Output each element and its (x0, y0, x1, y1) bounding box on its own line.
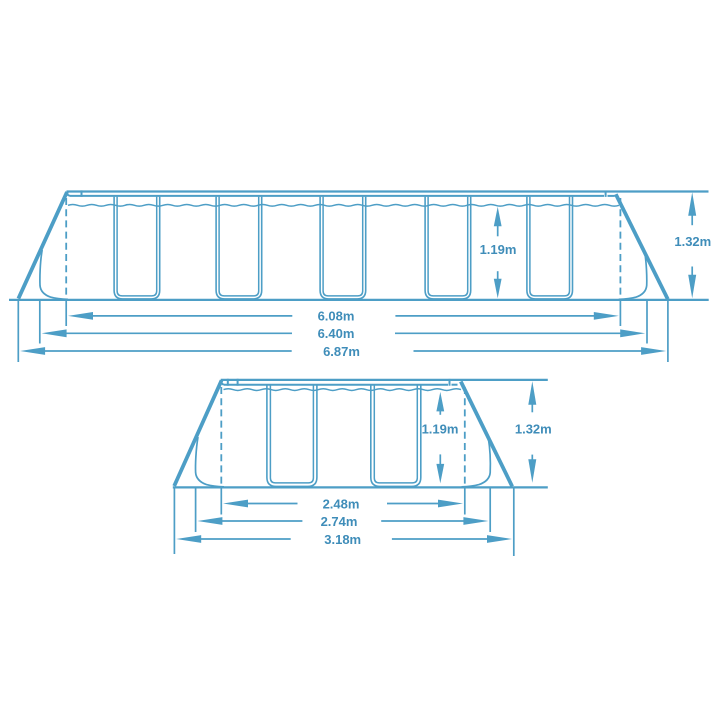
svg-text:2.48m: 2.48m (323, 496, 360, 511)
svg-text:3.18m: 3.18m (324, 532, 361, 547)
svg-text:6.08m: 6.08m (318, 309, 355, 324)
svg-text:1.19m: 1.19m (480, 242, 517, 257)
svg-text:6.40m: 6.40m (318, 326, 355, 341)
svg-text:1.32m: 1.32m (515, 421, 552, 436)
svg-text:1.32m: 1.32m (674, 234, 711, 249)
svg-text:1.19m: 1.19m (422, 421, 459, 436)
svg-text:6.87m: 6.87m (323, 344, 360, 359)
svg-text:2.74m: 2.74m (321, 514, 358, 529)
